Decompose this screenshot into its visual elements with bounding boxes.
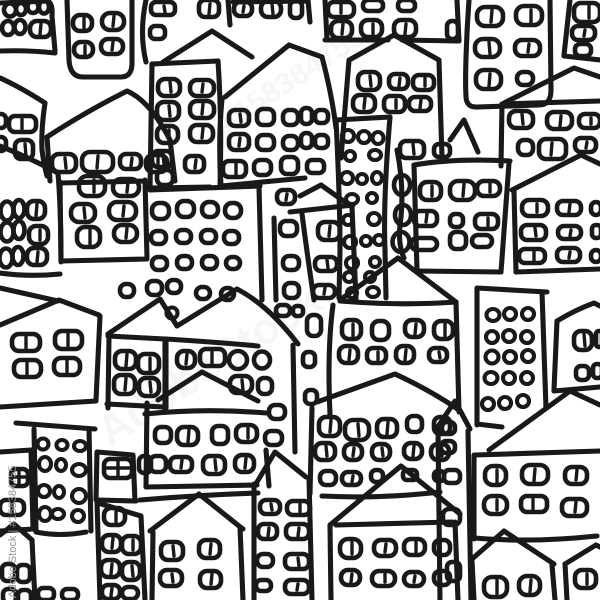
svg-text:Adobe Stock | #158384755: Adobe Stock | #158384755 (7, 465, 19, 598)
